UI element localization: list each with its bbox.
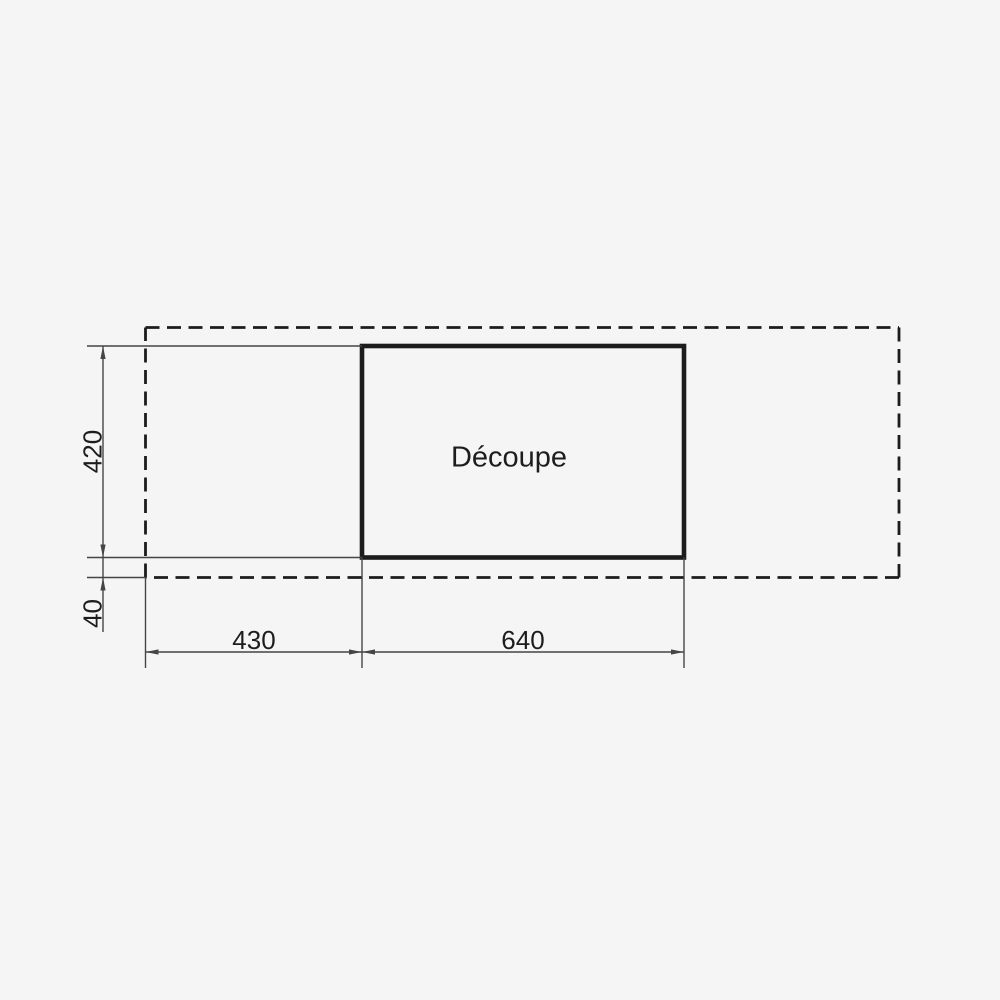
dimension-40: 40 [78,558,108,633]
dim-640-label: 640 [501,625,544,655]
dimension-640: 640 [362,625,684,655]
dimension-430: 430 [146,625,363,655]
technical-drawing: Découpe 420 40 430 [0,0,1000,1000]
dim-420-arrow-up-icon [100,346,105,359]
dim-430-arrow-right-icon [349,649,362,654]
dim-640-arrow-left-icon [362,649,375,654]
dim-420-arrow-down-icon [100,545,105,558]
drawing-canvas: Découpe 420 40 430 [0,0,1000,1000]
extension-lines [87,346,684,668]
dim-420-label: 420 [78,430,108,473]
dim-40-label: 40 [78,599,108,628]
dim-430-label: 430 [232,625,275,655]
cutout-label: Découpe [451,442,567,474]
dim-40-arrow-up-icon [100,578,105,591]
dim-640-arrow-right-icon [671,649,684,654]
dim-430-arrow-left-icon [146,649,159,654]
dimension-420: 420 [78,346,108,558]
